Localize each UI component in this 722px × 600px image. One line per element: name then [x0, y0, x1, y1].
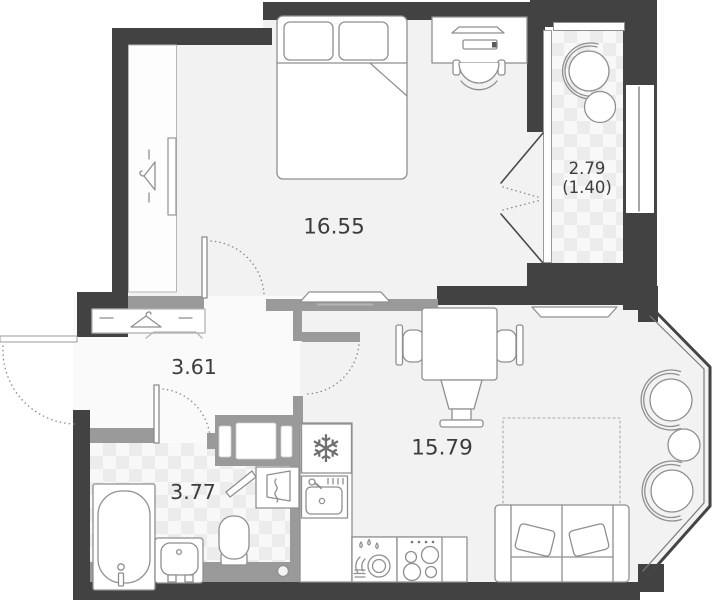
- bedroom-door: [202, 237, 264, 298]
- kitchen-door: [302, 332, 360, 394]
- kitchen-sink-icon: [302, 476, 348, 518]
- stove-icon: [397, 537, 442, 582]
- armchair-icon: [563, 43, 609, 99]
- furniture-layer: ❄: [0, 0, 722, 600]
- bathroom-sink-icon: [155, 538, 203, 583]
- floor-drain: [278, 566, 289, 577]
- toilet-icon: [219, 516, 249, 565]
- loggia-area: 2.79: [562, 159, 612, 178]
- chair-icon: [441, 380, 482, 409]
- coat-rack: [92, 309, 205, 338]
- dining-table-icon: [422, 308, 497, 380]
- bathroom-door: [154, 385, 210, 443]
- chair-back: [517, 325, 524, 365]
- office-chair-icon: [453, 60, 505, 90]
- room-area-label: 2.79 (1.40): [562, 159, 612, 197]
- chair-icon: [403, 330, 424, 362]
- side-table-icon: [585, 92, 616, 123]
- snowflake-icon: ❄: [310, 427, 342, 471]
- dish-rack-icon: [352, 537, 397, 582]
- fridge-icon: ❄: [302, 424, 352, 473]
- tv-icon: [300, 292, 390, 305]
- sofa-icon: [495, 505, 629, 582]
- bed-icon: [277, 16, 407, 179]
- loggia-area-reduced: (1.40): [562, 178, 612, 197]
- coffee-table-icon: [668, 429, 700, 461]
- sofa-bed-outline: [503, 418, 620, 506]
- armchair-icon: [641, 370, 692, 430]
- entrance-door: [0, 336, 77, 424]
- room-area-label: 15.79: [411, 436, 473, 461]
- tv-icon: [532, 307, 617, 317]
- dining-set: [396, 308, 523, 427]
- floor-plan: ❄: [0, 0, 722, 600]
- washing-machine-icon: [219, 423, 292, 459]
- chair-back: [396, 325, 403, 365]
- wardrobe: [129, 45, 177, 292]
- room-area-label: 16.55: [303, 215, 365, 240]
- chair-icon: [495, 330, 516, 362]
- water-heater-icon: [256, 467, 299, 508]
- armchair-icon: [642, 461, 693, 521]
- room-area-label: 3.61: [171, 355, 217, 379]
- room-area-label: 3.77: [170, 480, 216, 504]
- bathtub-icon: [93, 484, 155, 590]
- door-leaf: [226, 471, 256, 497]
- desk-icon: [432, 17, 527, 63]
- balcony-door: [501, 133, 543, 263]
